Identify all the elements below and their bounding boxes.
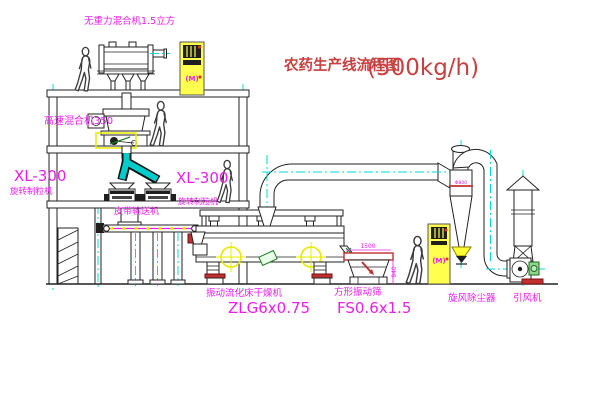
indicator-lamp	[198, 75, 201, 78]
gravity-free-mixer	[97, 42, 170, 90]
cyclone-cone	[450, 196, 472, 247]
rain-cap	[507, 176, 539, 190]
cabinet-motor-symbol: (M)	[432, 257, 445, 265]
label-belt-conveyor: 皮带输送机	[114, 205, 159, 217]
label-fan: 引风机	[513, 292, 542, 304]
mixer-top-nozzle	[109, 42, 116, 47]
granulator-leg	[135, 194, 140, 201]
label-cyclone: 旋风除尘器	[448, 292, 496, 304]
stack-body	[514, 190, 532, 246]
floor-slab-middle	[47, 146, 249, 153]
mixer-end-plate	[99, 45, 104, 73]
worker-ground	[406, 236, 423, 283]
indicator-lamp	[198, 45, 201, 48]
dim-cyclone: Φ800	[455, 180, 467, 186]
label-granulator-model-left: XL-300	[14, 167, 66, 185]
label-dryer-name: 振动流化床干燥机	[206, 287, 283, 299]
granulator-leg	[104, 194, 109, 201]
dim-sieve-width: 1500	[360, 243, 375, 250]
mixer-discharge-valves	[107, 74, 149, 90]
label-sieve-name: 方形振动筛	[334, 286, 382, 298]
control-cabinet-top	[180, 42, 204, 95]
feed-box	[193, 244, 207, 255]
exhaust-duct	[260, 155, 460, 230]
control-cabinet-right	[428, 224, 450, 284]
dryer-supports	[205, 262, 332, 284]
square-vibrating-sieve	[340, 246, 393, 284]
fan-base	[522, 279, 543, 284]
dim-sieve-height: 940	[391, 266, 398, 278]
cyclone-inlet-transition	[438, 163, 450, 188]
cabinet-motor-symbol: (M)	[185, 75, 198, 83]
induced-draft-fan	[507, 258, 543, 284]
worker-top-floor	[75, 47, 91, 91]
label-granulator-name-right: 旋转制粒机	[178, 196, 218, 206]
belt-conveyor	[96, 223, 198, 286]
mixer-lid	[103, 109, 149, 116]
granulator-leg	[140, 194, 145, 201]
granulator-right	[140, 183, 176, 201]
discharge-valve	[456, 256, 467, 263]
granulator-funnel	[146, 183, 170, 189]
indicator-lamp	[445, 229, 448, 232]
fluid-bed-dryer	[188, 207, 344, 284]
mixer-end-plate	[148, 45, 153, 73]
label-sieve-model: FS0.6x1.5	[337, 299, 411, 317]
tail-pulley	[104, 226, 110, 232]
worker-second-floor	[150, 101, 166, 145]
feed-pipe	[122, 93, 131, 111]
process-flow-drawing: 农药生产线流程图 (500kg/h) 无重力混合机1.5立方 高速混合机350 …	[0, 0, 600, 403]
sieve-base	[350, 277, 387, 284]
label-gravity-mixer: 无重力混合机1.5立方	[84, 15, 175, 27]
granulator-left	[104, 183, 140, 201]
flow-diagram-canvas: 农药生产线流程图 (500kg/h) 无重力混合机1.5立方 高速混合机350 …	[0, 0, 600, 403]
sieve-top-frame	[344, 253, 393, 260]
label-high-speed-mixer: 高速混合机350	[44, 114, 113, 127]
dryer-top-rim	[196, 226, 344, 233]
diagram-capacity: (500kg/h)	[367, 55, 479, 81]
granulator-leg	[171, 194, 176, 201]
mixer-body	[104, 47, 148, 69]
high-speed-mixer	[88, 109, 150, 148]
mixer-top-nozzle	[129, 42, 136, 47]
hatched-pedestal	[58, 228, 78, 284]
label-granulator-model-right: XL-300	[176, 169, 228, 187]
granulator-funnel	[110, 183, 134, 189]
label-dryer-model: ZLG6x0.75	[228, 299, 310, 317]
discharge-hopper	[452, 247, 471, 256]
label-granulator-name-left: 旋转制粒机	[10, 186, 53, 197]
indicator-lamp	[446, 258, 449, 261]
duct-elbow-and-run	[260, 164, 438, 207]
